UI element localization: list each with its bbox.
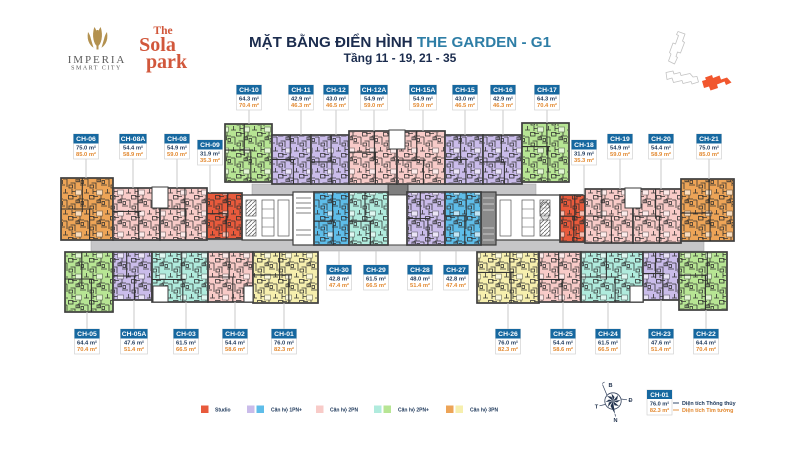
svg-text:42.8 m²: 42.8 m² (329, 276, 349, 283)
svg-text:47.4 m²: 47.4 m² (446, 282, 466, 289)
svg-text:CH-03: CH-03 (176, 331, 196, 338)
svg-text:42.9 m²: 42.9 m² (291, 96, 311, 103)
svg-text:76.0 m²: 76.0 m² (650, 401, 669, 408)
svg-text:MẶT BẰNG ĐIỂN HÌNH THE GARDEN: MẶT BẰNG ĐIỂN HÌNH THE GARDEN - G1 (249, 33, 552, 51)
svg-text:66.5 m²: 66.5 m² (598, 346, 618, 353)
svg-text:82.3 m²: 82.3 m² (498, 346, 518, 353)
svg-text:58.9 m²: 58.9 m² (651, 151, 671, 158)
svg-text:CH-21: CH-21 (699, 136, 719, 143)
svg-text:Đ: Đ (628, 398, 632, 404)
svg-text:76.0 m²: 76.0 m² (274, 340, 294, 347)
svg-text:82.3 m²: 82.3 m² (650, 407, 669, 414)
svg-text:CH-05A: CH-05A (122, 331, 147, 338)
svg-text:CH-27: CH-27 (446, 267, 466, 274)
svg-text:CH-23: CH-23 (651, 331, 671, 338)
svg-text:42.8 m²: 42.8 m² (446, 276, 466, 283)
svg-text:CH-06: CH-06 (76, 136, 96, 143)
svg-text:43.0 m²: 43.0 m² (326, 96, 346, 103)
svg-text:47.6 m²: 47.6 m² (651, 340, 671, 347)
svg-text:Căn hộ 1PN+: Căn hộ 1PN+ (271, 408, 302, 414)
svg-text:CH-09: CH-09 (200, 142, 220, 149)
svg-text:CH-18: CH-18 (574, 142, 594, 149)
svg-text:Tầng 11 - 19, 21 - 35: Tầng 11 - 19, 21 - 35 (344, 51, 457, 65)
svg-text:CH-30: CH-30 (329, 267, 349, 274)
svg-text:CH-05: CH-05 (77, 331, 97, 338)
svg-text:64.3 m²: 64.3 m² (537, 96, 557, 103)
svg-text:70.4 m²: 70.4 m² (77, 346, 97, 353)
svg-text:64.4 m²: 64.4 m² (77, 340, 97, 347)
svg-text:54.9 m²: 54.9 m² (610, 145, 630, 152)
svg-text:CH-02: CH-02 (225, 331, 245, 338)
svg-text:Diện tích Tim tường: Diện tích Tim tường (682, 408, 733, 414)
svg-text:47.4 m²: 47.4 m² (329, 282, 349, 289)
svg-text:CH-01: CH-01 (274, 331, 294, 338)
svg-text:CH-10: CH-10 (239, 87, 259, 94)
svg-text:54.9 m²: 54.9 m² (167, 145, 187, 152)
svg-text:46.3 m²: 46.3 m² (291, 102, 311, 109)
svg-text:IMPERIA: IMPERIA (68, 54, 127, 66)
svg-text:Diện tích Thông thủy: Diện tích Thông thủy (682, 401, 736, 407)
svg-text:Căn hộ 2PN+: Căn hộ 2PN+ (398, 408, 429, 414)
svg-text:T: T (595, 405, 599, 411)
svg-text:CH-20: CH-20 (651, 136, 671, 143)
svg-text:31.9 m²: 31.9 m² (574, 151, 594, 158)
svg-text:CH-12: CH-12 (326, 87, 346, 94)
svg-text:CH-15: CH-15 (455, 87, 475, 94)
svg-text:54.9 m²: 54.9 m² (413, 96, 433, 103)
svg-text:48.0 m²: 48.0 m² (410, 276, 430, 283)
svg-text:CH-22: CH-22 (696, 331, 716, 338)
svg-text:58.6 m²: 58.6 m² (225, 346, 245, 353)
svg-text:43.0 m²: 43.0 m² (455, 96, 475, 103)
svg-text:Studio: Studio (215, 408, 231, 414)
svg-text:59.0 m²: 59.0 m² (413, 102, 433, 109)
svg-text:CH-12A: CH-12A (362, 87, 387, 94)
svg-text:70.4 m²: 70.4 m² (696, 346, 716, 353)
svg-text:35.3 m²: 35.3 m² (200, 157, 220, 164)
svg-text:70.4 m²: 70.4 m² (537, 102, 557, 109)
svg-text:CH-29: CH-29 (366, 267, 386, 274)
svg-text:CH-11: CH-11 (291, 87, 310, 94)
svg-text:58.6 m²: 58.6 m² (553, 346, 573, 353)
svg-text:58.9 m²: 58.9 m² (123, 151, 143, 158)
svg-text:42.9 m²: 42.9 m² (493, 96, 513, 103)
svg-text:85.0 m²: 85.0 m² (76, 151, 96, 158)
svg-text:CH-16: CH-16 (493, 87, 513, 94)
svg-text:70.4 m²: 70.4 m² (239, 102, 259, 109)
svg-text:46.3 m²: 46.3 m² (493, 102, 513, 109)
svg-text:Căn hộ 2PN: Căn hộ 2PN (330, 408, 358, 414)
svg-text:61.5 m²: 61.5 m² (598, 340, 618, 347)
svg-text:64.4 m²: 64.4 m² (696, 340, 716, 347)
svg-text:35.3 m²: 35.3 m² (574, 157, 594, 164)
svg-text:N: N (613, 418, 617, 424)
svg-text:park: park (146, 51, 188, 73)
svg-text:61.5 m²: 61.5 m² (366, 276, 386, 283)
svg-text:B: B (608, 383, 612, 389)
svg-text:85.0 m²: 85.0 m² (699, 151, 719, 158)
svg-text:51.4 m²: 51.4 m² (410, 282, 430, 289)
svg-text:66.5 m²: 66.5 m² (366, 282, 386, 289)
svg-text:CH-28: CH-28 (410, 267, 430, 274)
svg-text:75.0 m²: 75.0 m² (76, 145, 96, 152)
svg-text:47.6 m²: 47.6 m² (124, 340, 144, 347)
svg-text:82.3 m²: 82.3 m² (274, 346, 294, 353)
svg-text:59.0 m²: 59.0 m² (364, 102, 384, 109)
svg-text:59.0 m²: 59.0 m² (167, 151, 187, 158)
svg-text:CH-17: CH-17 (537, 87, 557, 94)
svg-text:64.3 m²: 64.3 m² (239, 96, 259, 103)
svg-text:75.0 m²: 75.0 m² (699, 145, 719, 152)
svg-text:76.0 m²: 76.0 m² (498, 340, 518, 347)
svg-text:SMART CITY: SMART CITY (71, 66, 122, 72)
svg-text:CH-08A: CH-08A (121, 136, 146, 143)
svg-text:54.4 m²: 54.4 m² (123, 145, 143, 152)
svg-text:Căn hộ 3PN: Căn hộ 3PN (470, 408, 498, 414)
svg-text:51.4 m²: 51.4 m² (651, 346, 671, 353)
svg-text:54.4 m²: 54.4 m² (225, 340, 245, 347)
svg-text:61.5 m²: 61.5 m² (176, 340, 196, 347)
svg-text:46.5 m²: 46.5 m² (326, 102, 346, 109)
svg-text:CH-25: CH-25 (553, 331, 573, 338)
svg-text:59.0 m²: 59.0 m² (610, 151, 630, 158)
svg-text:CH-01: CH-01 (650, 392, 669, 399)
svg-text:54.4 m²: 54.4 m² (651, 145, 671, 152)
svg-text:CH-15A: CH-15A (411, 87, 436, 94)
svg-text:54.4 m²: 54.4 m² (553, 340, 573, 347)
svg-text:31.9 m²: 31.9 m² (200, 151, 220, 158)
svg-text:54.9 m²: 54.9 m² (364, 96, 384, 103)
svg-text:46.5 m²: 46.5 m² (455, 102, 475, 109)
svg-text:CH-24: CH-24 (598, 331, 618, 338)
svg-text:CH-19: CH-19 (610, 136, 630, 143)
svg-text:CH-26: CH-26 (498, 331, 518, 338)
svg-text:CH-08: CH-08 (167, 136, 187, 143)
svg-text:51.4 m²: 51.4 m² (124, 346, 144, 353)
svg-text:66.5 m²: 66.5 m² (176, 346, 196, 353)
